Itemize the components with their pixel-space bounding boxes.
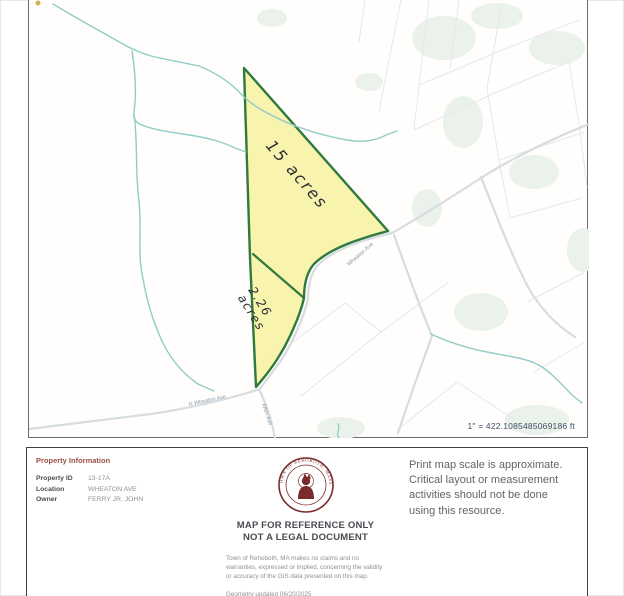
reference-heading-line2: NOT A LEGAL DOCUMENT — [226, 532, 385, 544]
location-value: WHEATON AVE — [88, 485, 205, 496]
survey-marker-dot — [36, 1, 41, 6]
gis-map-printout: Wheaton Ave N Wheaton Ave Allen Ave 15 a… — [0, 0, 624, 596]
highlighted-parcel — [244, 68, 388, 387]
property-id-row: Property ID 13-17A — [36, 474, 205, 485]
disclaimer-text: Town of Rehoboth, MA makes no claims and… — [226, 554, 385, 581]
road-minor-2 — [398, 336, 432, 433]
property-info-title: Property Information — [36, 456, 205, 465]
gis-map: Wheaton Ave N Wheaton Ave Allen Ave 15 a… — [29, 0, 589, 438]
owner-label: Owner — [36, 495, 88, 506]
scale-note-panel: Print map scale is approximate. Critical… — [397, 447, 588, 596]
reference-heading-line1: MAP FOR REFERENCE ONLY — [226, 520, 385, 532]
road-minor-1 — [394, 235, 432, 336]
disclaimer-panel: TOWN OF REHOBOTH, MASS. MAP FOR REFERENC… — [214, 447, 398, 596]
road-label-allen-ave: Allen Ave — [260, 403, 273, 427]
parcel-polygon — [244, 68, 388, 387]
map-scale-text: 1" = 422.1085485069186 ft — [467, 421, 575, 431]
road-label-n-wheaton-ave: N Wheaton Ave — [188, 394, 227, 408]
property-id-value: 13-17A — [88, 474, 205, 485]
scale-note-text: Print map scale is approximate. Critical… — [409, 458, 575, 519]
geometry-updated-text: Geometry updated 06/20/2025 — [226, 590, 385, 596]
owner-value: FERRY JR, JOHN — [88, 495, 205, 506]
location-row: Location WHEATON AVE — [36, 485, 205, 496]
town-seal: TOWN OF REHOBOTH, MASS. — [277, 456, 335, 514]
map-canvas: Wheaton Ave N Wheaton Ave Allen Ave 15 a… — [28, 0, 588, 438]
seal-figure — [298, 473, 314, 499]
location-label: Location — [36, 485, 88, 496]
owner-row: Owner FERRY JR, JOHN — [36, 495, 205, 506]
property-info-panel: Property Information Property ID 13-17A … — [26, 447, 215, 596]
property-id-label: Property ID — [36, 474, 88, 485]
